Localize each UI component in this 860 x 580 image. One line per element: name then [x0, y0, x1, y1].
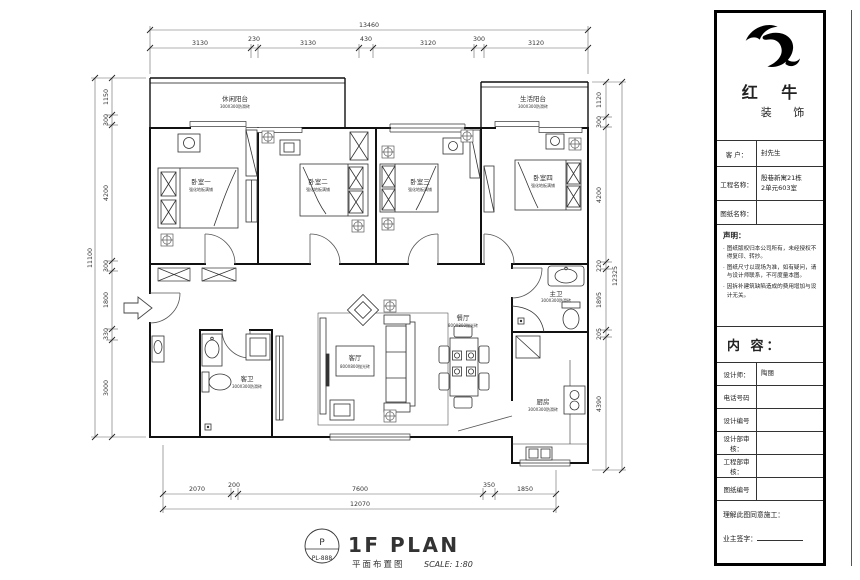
svg-text:3130: 3130	[192, 40, 208, 47]
signature-line	[757, 533, 803, 541]
dim-top-labels: 13460 3130 230 3130 430 3120 300 3120	[192, 22, 544, 47]
engineering-audit-row: 工程部审核：	[717, 455, 823, 478]
phone-label: 电话号码	[717, 386, 757, 408]
room-label-bedroom2: 卧室二	[308, 177, 328, 186]
svg-text:4390: 4390	[596, 396, 603, 412]
svg-text:800X800抛光砖: 800X800抛光砖	[340, 363, 370, 369]
designer-row: 设计师： 陶丽	[717, 363, 823, 386]
project-value-line1: 殷巷新寓21栋	[761, 174, 823, 184]
room-label-bedroom3: 卧室三	[410, 177, 430, 186]
room-label-bath-master: 主卫	[550, 289, 564, 298]
brand-logo-area: 红 牛 装 饰	[717, 13, 823, 141]
svg-text:300: 300	[596, 116, 603, 128]
room-kitchen	[512, 336, 588, 460]
svg-text:3120: 3120	[528, 40, 544, 47]
customer-label: 客 户：	[717, 141, 757, 166]
caption-code: PL-888	[312, 555, 333, 562]
sheet-number-label: 图纸编号	[717, 478, 757, 500]
svg-text:12070: 12070	[350, 501, 370, 508]
caption-name: 平面布置图	[352, 559, 405, 570]
hall-cabinets	[158, 268, 236, 281]
svg-text:300X300防滑砖: 300X300防滑砖	[232, 383, 262, 389]
caption-letter: P	[319, 538, 325, 548]
caption-scale: SCALE: 1:80	[424, 560, 473, 569]
room-label-balcony-left: 休闲阳台	[222, 94, 248, 103]
svg-text:300X300防滑砖: 300X300防滑砖	[528, 406, 558, 412]
svg-text:4200: 4200	[596, 187, 603, 203]
title-block: 红 牛 装 饰 客 户： 封先生 工程名称： 殷巷新寓21栋 2单元603室 图…	[714, 10, 826, 566]
svg-text:3120: 3120	[420, 40, 436, 47]
floor-plan: 13460 3130 230 3130 430 3120 300 3120 20…	[0, 0, 710, 580]
content-heading: 内 容：	[717, 327, 823, 363]
svg-text:强化地板满铺: 强化地板满铺	[408, 186, 432, 192]
caption-title: 1F PLAN	[348, 533, 460, 557]
drawing-name-label: 图纸名称：	[717, 201, 757, 224]
balconies	[150, 78, 588, 128]
dim-right-labels: 1120 300 4200 220 1895 205 4390 12325	[596, 92, 619, 412]
customer-value: 封先生	[761, 149, 823, 159]
owner-sign-section: 理解此图同意施工： 业主签字：	[717, 501, 823, 563]
plan-caption: P PL-888 1F PLAN 平面布置图 SCALE: 1:80	[305, 529, 473, 570]
svg-text:350: 350	[483, 482, 495, 489]
svg-text:220: 220	[596, 260, 603, 272]
svg-text:300X300防滑砖: 300X300防滑砖	[541, 297, 571, 303]
svg-text:300: 300	[473, 36, 485, 43]
agree-label: 理解此图同意施工：	[723, 509, 817, 519]
phone-row: 电话号码	[717, 386, 823, 409]
room-label-dining: 餐厅	[457, 313, 471, 322]
project-row: 工程名称： 殷巷新寓21栋 2单元603室	[717, 167, 823, 201]
statement-title: 声明：	[723, 230, 817, 241]
statement-item: ·图纸尺寸以现场为准，如有疑问，请与设计师联系，不可度量本图。	[723, 264, 817, 280]
entry-arrow-icon	[124, 297, 152, 319]
svg-text:2070: 2070	[189, 486, 205, 493]
statement-item: ·图纸版权归本公司所有，未经授权不得复印、转抄。	[723, 245, 817, 261]
page-edge-line	[851, 10, 852, 566]
room-dining	[439, 326, 489, 408]
dim-right	[592, 79, 626, 473]
svg-text:强化地板满铺: 强化地板满铺	[531, 182, 555, 188]
dim-left	[91, 75, 146, 440]
brand-name-line1: 红 牛	[742, 79, 807, 103]
room-label-bedroom4: 卧室四	[533, 173, 553, 182]
room-bath-guest	[152, 334, 283, 430]
dim-left-labels: 1150 300 4200 300 1800 330 3000 11100	[87, 89, 110, 396]
room-label-bedroom1: 卧室一	[191, 177, 211, 186]
svg-text:1120: 1120	[596, 92, 603, 108]
svg-text:1800: 1800	[103, 292, 110, 308]
svg-text:1150: 1150	[103, 89, 110, 105]
owner-sign-label: 业主签字：	[723, 535, 757, 543]
svg-text:430: 430	[360, 36, 372, 43]
drawing-name-row: 图纸名称：	[717, 201, 823, 225]
customer-row: 客 户： 封先生	[717, 141, 823, 167]
svg-text:3000: 3000	[103, 380, 110, 396]
room-bedroom3	[380, 130, 480, 230]
room-label-kitchen: 厨房	[537, 397, 550, 406]
design-number-label: 设计编号	[717, 409, 757, 431]
drawing-sheet: 13460 3130 230 3130 430 3120 300 3120 20…	[0, 0, 860, 580]
svg-text:300X300防滑砖: 300X300防滑砖	[518, 103, 548, 109]
sheet-number-row: 图纸编号	[717, 478, 823, 501]
svg-text:300: 300	[103, 260, 110, 272]
svg-text:1895: 1895	[596, 292, 603, 308]
svg-text:1850: 1850	[517, 486, 533, 493]
room-label-living: 客厅	[349, 353, 363, 362]
svg-text:3130: 3130	[300, 40, 316, 47]
svg-text:12325: 12325	[612, 266, 619, 286]
svg-text:7600: 7600	[352, 486, 368, 493]
engineering-audit-label: 工程部审核：	[717, 455, 757, 477]
design-audit-row: 设计部审核：	[717, 432, 823, 455]
svg-text:330: 330	[103, 328, 110, 340]
svg-text:11100: 11100	[87, 248, 94, 268]
project-label: 工程名称：	[717, 167, 757, 200]
svg-text:300: 300	[103, 114, 110, 126]
svg-text:4200: 4200	[103, 185, 110, 201]
bull-logo-icon	[738, 19, 802, 77]
dim-text: 13460	[359, 22, 379, 29]
svg-text:300X300防滑砖: 300X300防滑砖	[220, 103, 250, 109]
svg-text:强化地板满铺: 强化地板满铺	[189, 186, 213, 192]
room-label-bath-guest: 客卫	[241, 374, 255, 383]
svg-text:230: 230	[248, 36, 260, 43]
design-audit-label: 设计部审核：	[717, 432, 757, 454]
designer-label: 设计师：	[717, 363, 757, 385]
room-living	[318, 294, 448, 425]
design-number-row: 设计编号	[717, 409, 823, 432]
svg-text:205: 205	[596, 328, 603, 340]
svg-text:800X800抛光砖: 800X800抛光砖	[448, 322, 478, 328]
room-label-balcony-right: 生活阳台	[520, 94, 546, 103]
svg-text:200: 200	[228, 482, 240, 489]
brand-name-line2: 装 饰	[761, 104, 814, 120]
project-value-line2: 2单元603室	[761, 184, 823, 194]
designer-value: 陶丽	[761, 369, 823, 379]
svg-text:强化地板满铺: 强化地板满铺	[306, 186, 330, 192]
room-bedroom4	[484, 134, 581, 212]
statement-section: 声明： ·图纸版权归本公司所有，未经授权不得复印、转抄。 ·图纸尺寸以现场为准，…	[717, 225, 823, 327]
statement-item: ·因拆补建筑缺陷造成的费用增加与设计无关。	[723, 283, 817, 299]
dim-top	[147, 26, 591, 74]
